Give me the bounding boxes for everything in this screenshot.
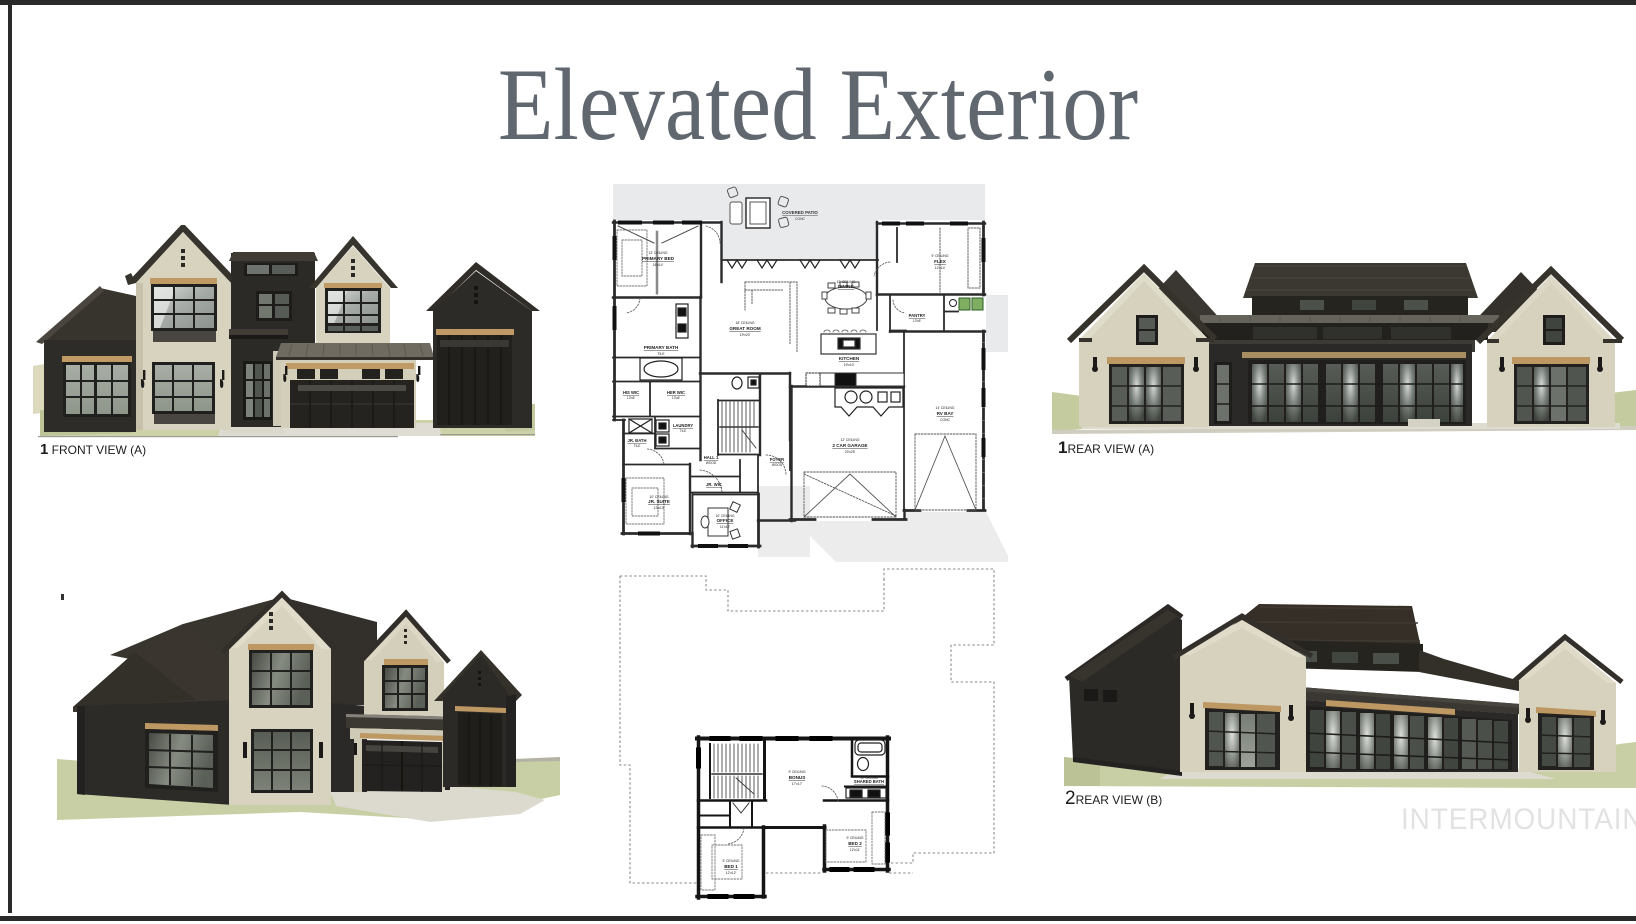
svg-text:BONUS: BONUS <box>789 775 806 780</box>
svg-text:19'x10': 19'x10' <box>844 363 855 367</box>
svg-text:TILE: TILE <box>634 444 641 448</box>
svg-text:RV BAY: RV BAY <box>937 411 954 416</box>
svg-text:9' CEILING: 9' CEILING <box>931 254 948 258</box>
svg-text:HIS WIC: HIS WIC <box>623 390 639 395</box>
svg-text:JR. SUITE: JR. SUITE <box>648 499 670 504</box>
svg-text:WOOD: WOOD <box>772 463 783 467</box>
svg-text:9' CEILING: 9' CEILING <box>846 836 863 840</box>
svg-text:BED 2: BED 2 <box>848 841 862 846</box>
svg-text:23'x25': 23'x25' <box>845 450 856 454</box>
svg-text:JR. BATH: JR. BATH <box>628 438 647 443</box>
svg-text:FOYER: FOYER <box>770 457 784 462</box>
svg-text:OFFICE: OFFICE <box>717 518 734 523</box>
svg-text:17'x17': 17'x17' <box>792 782 803 786</box>
svg-text:12'x11': 12'x11' <box>850 848 861 852</box>
svg-text:13'x5': 13'x5' <box>913 319 922 323</box>
svg-text:13'x13': 13'x13' <box>654 506 665 510</box>
svg-text:13'x5': 13'x5' <box>627 396 636 400</box>
svg-text:19'x20': 19'x20' <box>740 333 751 337</box>
svg-text:PANTRY: PANTRY <box>909 313 926 318</box>
svg-text:11'x12': 11'x12' <box>720 525 731 529</box>
svg-text:TILE: TILE <box>680 429 687 433</box>
svg-text:PRIMARY BATH: PRIMARY BATH <box>644 345 679 350</box>
svg-text:HER WIC: HER WIC <box>667 390 685 395</box>
svg-text:WOOD: WOOD <box>706 461 717 465</box>
svg-text:2 CAR GARAGE: 2 CAR GARAGE <box>832 443 867 448</box>
svg-text:9' CEILING: 9' CEILING <box>722 859 739 863</box>
svg-text:COVERED PATIO: COVERED PATIO <box>782 210 818 215</box>
svg-text:12' CEILING: 12' CEILING <box>841 438 860 442</box>
svg-text:10' CEILING: 10' CEILING <box>860 776 878 780</box>
svg-text:9' CEILING: 9' CEILING <box>788 770 805 774</box>
svg-text:DINING: DINING <box>838 284 855 289</box>
svg-text:PRIMARY BED: PRIMARY BED <box>642 256 675 261</box>
svg-text:GREAT ROOM: GREAT ROOM <box>729 326 760 331</box>
svg-text:CONC: CONC <box>940 418 951 422</box>
svg-text:12'x12': 12'x12' <box>726 871 737 875</box>
svg-text:BED 1: BED 1 <box>724 864 738 869</box>
svg-text:JR. WIC: JR. WIC <box>706 482 722 487</box>
svg-text:FLEX: FLEX <box>934 259 947 264</box>
svg-text:12' CEILING: 12' CEILING <box>837 280 856 284</box>
svg-text:HALL 1: HALL 1 <box>704 455 719 460</box>
svg-text:12'x14': 12'x14' <box>935 266 946 270</box>
svg-text:14' CEILING: 14' CEILING <box>936 406 955 410</box>
svg-text:10' CEILING: 10' CEILING <box>716 514 735 518</box>
svg-text:KITCHEN: KITCHEN <box>839 356 860 361</box>
svg-text:18' CEILING: 18' CEILING <box>736 321 755 325</box>
svg-text:TILE: TILE <box>657 352 665 356</box>
svg-text:13' CEILING: 13' CEILING <box>649 251 668 255</box>
svg-text:CONC: CONC <box>795 217 806 221</box>
svg-text:13'x6': 13'x6' <box>672 396 681 400</box>
svg-text:LAUNDRY: LAUNDRY <box>673 423 694 428</box>
svg-text:10' CEILING: 10' CEILING <box>650 495 669 499</box>
svg-text:16'x14': 16'x14' <box>653 263 664 267</box>
